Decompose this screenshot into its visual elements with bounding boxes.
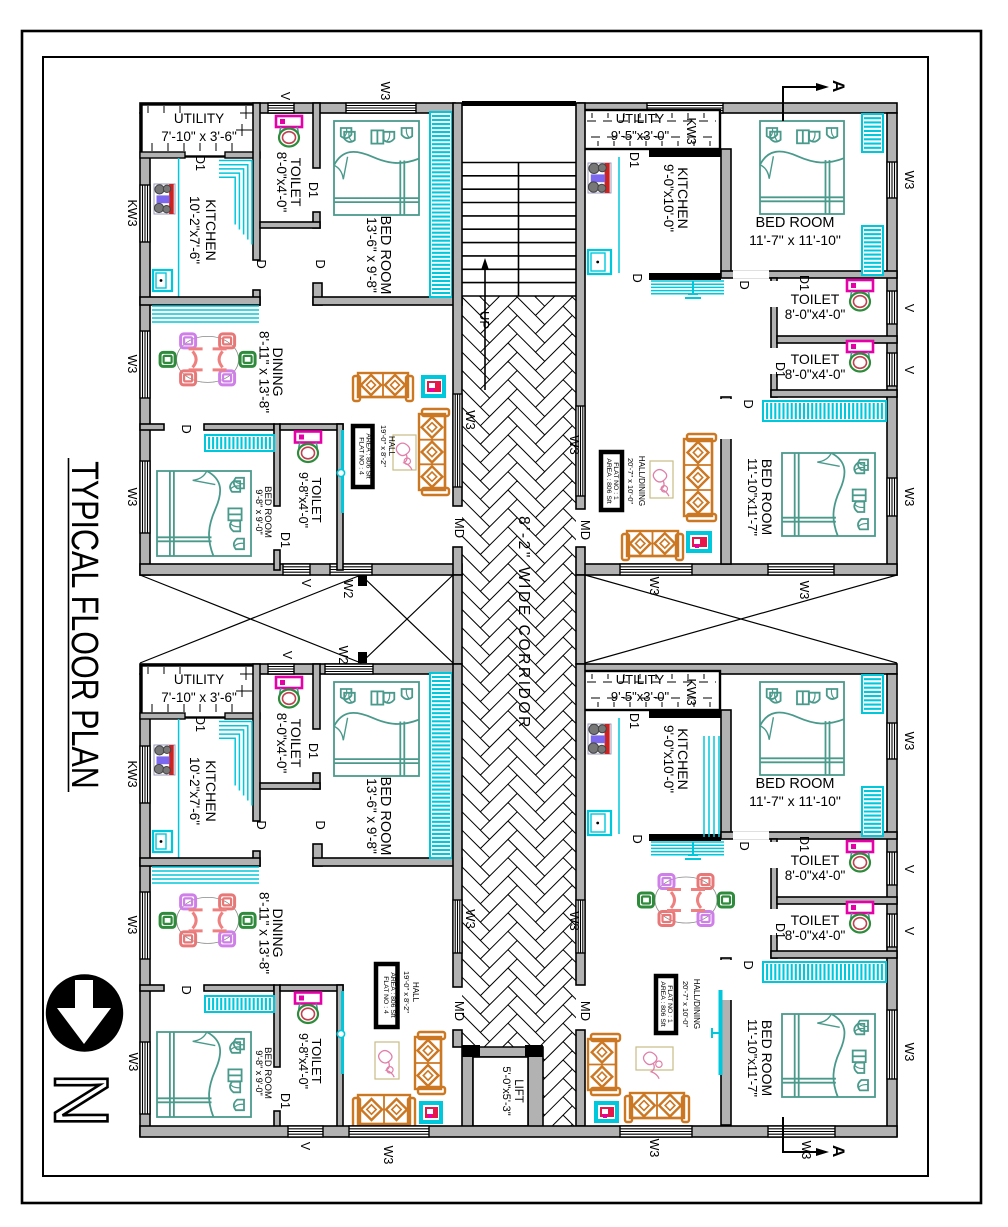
svg-text:8'-11" x 13'-8": 8'-11" x 13'-8"	[257, 331, 272, 413]
svg-text:D1: D1	[797, 275, 811, 291]
svg-text:D: D	[741, 399, 756, 408]
svg-text:V: V	[278, 92, 292, 101]
svg-text:D1: D1	[193, 155, 207, 171]
svg-text:V: V	[280, 651, 294, 660]
svg-text:TOILET: TOILET	[791, 291, 840, 307]
svg-text:TYPICAL FLOOR PLAN: TYPICAL FLOOR PLAN	[63, 461, 105, 789]
svg-text:W3: W3	[125, 488, 139, 507]
svg-text:KW3: KW3	[684, 678, 698, 705]
svg-text:W3: W3	[567, 911, 582, 931]
svg-text:TOILET: TOILET	[791, 912, 840, 928]
svg-text:W3: W3	[799, 1141, 813, 1160]
svg-text:11'-10"x11'-7": 11'-10"x11'-7"	[745, 1019, 760, 1097]
svg-text:BED ROOM: BED ROOM	[759, 1020, 775, 1096]
svg-text:10'-2"x7'-6": 10'-2"x7'-6"	[187, 757, 202, 825]
svg-text:V: V	[902, 366, 916, 375]
svg-text:10'-2"x7'-6": 10'-2"x7'-6"	[187, 196, 202, 264]
svg-text:A: A	[829, 1145, 848, 1157]
svg-text:D1: D1	[773, 362, 787, 378]
svg-text:W3: W3	[463, 410, 478, 430]
svg-text:TOILET: TOILET	[309, 1038, 324, 1083]
svg-text:MD: MD	[578, 1001, 593, 1021]
svg-text:KW3: KW3	[125, 760, 139, 787]
svg-text:FLAT NO : 4: FLAT NO : 4	[382, 976, 389, 1014]
svg-text:W3: W3	[125, 355, 139, 374]
svg-text:9'-0"x10'-0": 9'-0"x10'-0"	[661, 164, 676, 232]
svg-text:D: D	[254, 259, 269, 268]
svg-text:KW3: KW3	[684, 117, 698, 144]
svg-text:9'-5"x3'-0": 9'-5"x3'-0"	[611, 128, 670, 143]
svg-text:9'-8" x 9'-0": 9'-8" x 9'-0"	[254, 489, 264, 534]
svg-text:HALL/DINING: HALL/DINING	[692, 979, 701, 1029]
svg-text:BED ROOM: BED ROOM	[756, 215, 835, 231]
svg-text:D1: D1	[627, 152, 641, 168]
svg-text:UTILITY: UTILITY	[174, 672, 224, 687]
svg-text:11'-7" x 11'-10": 11'-7" x 11'-10"	[749, 232, 841, 248]
svg-text:N: N	[38, 1073, 123, 1128]
svg-text:W3: W3	[902, 488, 916, 507]
svg-text:HALL: HALL	[411, 982, 420, 1003]
svg-text:8'-0"x4'-0": 8'-0"x4'-0"	[785, 307, 846, 322]
svg-text:AREA : 806 Sft: AREA : 806 Sft	[389, 972, 396, 1017]
svg-text:TOILET: TOILET	[791, 852, 840, 868]
svg-text:D1: D1	[278, 1093, 292, 1109]
svg-text:8'-11" x 13'-8": 8'-11" x 13'-8"	[257, 892, 272, 974]
svg-text:W2: W2	[336, 646, 350, 665]
svg-text:D1: D1	[627, 713, 641, 729]
svg-text:D: D	[737, 841, 752, 850]
svg-text:D: D	[179, 985, 194, 994]
svg-text:TOILET: TOILET	[791, 351, 840, 367]
svg-text:FLAT NO : 1: FLAT NO : 1	[612, 462, 619, 500]
svg-text:11'-7" x 11'-10": 11'-7" x 11'-10"	[749, 793, 841, 809]
svg-text:D1: D1	[797, 836, 811, 852]
svg-text:FLAT NO : 4: FLAT NO : 4	[358, 437, 365, 475]
svg-text:9'-8" x 9'-0": 9'-8" x 9'-0"	[254, 1050, 264, 1095]
svg-text:19'-0" x 8'-2": 19'-0" x 8'-2"	[402, 971, 411, 1013]
svg-text:W3: W3	[647, 577, 661, 596]
svg-text:9'-8"x4'-0": 9'-8"x4'-0"	[296, 472, 310, 528]
svg-text:W3: W3	[902, 171, 916, 190]
svg-text:HALL/DINING: HALL/DINING	[637, 456, 646, 506]
svg-text:D1: D1	[278, 532, 292, 548]
svg-text:11'-10"x11'-7": 11'-10"x11'-7"	[745, 458, 760, 536]
svg-text:8'-2" WIDE CORRIDOR: 8'-2" WIDE CORRIDOR	[515, 516, 532, 730]
svg-text:TOILET: TOILET	[288, 158, 304, 207]
svg-text:W3: W3	[126, 1053, 140, 1072]
svg-text:MD: MD	[578, 520, 593, 540]
svg-text:8'-0"x4'-0": 8'-0"x4'-0"	[274, 713, 289, 774]
svg-text:KW3: KW3	[125, 199, 139, 226]
svg-text:19'-0" x 8'-2": 19'-0" x 8'-2"	[379, 425, 388, 467]
svg-text:13'-6" x 9'-8": 13'-6" x 9'-8"	[364, 217, 379, 293]
svg-text:D: D	[313, 259, 328, 268]
svg-text:W3: W3	[902, 732, 916, 751]
svg-text:D: D	[179, 424, 194, 433]
svg-text:D: D	[254, 820, 269, 829]
svg-text:KITCHEN: KITCHEN	[203, 760, 219, 821]
svg-text:20'-7" x 10'-0": 20'-7" x 10'-0"	[681, 981, 690, 1027]
svg-text:V: V	[298, 1142, 312, 1151]
svg-text:D: D	[737, 280, 752, 289]
svg-text:LIFT: LIFT	[512, 1079, 524, 1103]
svg-text:UTILITY: UTILITY	[616, 672, 665, 687]
svg-text:D1: D1	[306, 182, 320, 198]
svg-text:W3: W3	[567, 435, 582, 455]
svg-text:9'-0"x10'-0": 9'-0"x10'-0"	[661, 725, 676, 793]
svg-text:BED ROOM: BED ROOM	[756, 776, 835, 792]
svg-text:D: D	[630, 273, 645, 282]
svg-text:W2: W2	[341, 580, 355, 599]
svg-text:20'-7" x 10'-0": 20'-7" x 10'-0"	[626, 458, 635, 504]
svg-text:D1: D1	[306, 743, 320, 759]
svg-text:D1: D1	[773, 923, 787, 939]
svg-text:9'-8"x4'-0": 9'-8"x4'-0"	[296, 1033, 310, 1089]
svg-text:BED ROOM: BED ROOM	[759, 459, 775, 535]
svg-text:D1: D1	[193, 716, 207, 732]
svg-text:7'-10" x 3'-6": 7'-10" x 3'-6"	[161, 129, 237, 144]
svg-text:V: V	[902, 927, 916, 936]
svg-text:V: V	[299, 579, 313, 588]
svg-text:AREA : 806 Sft: AREA : 806 Sft	[659, 981, 666, 1026]
svg-text:8'-0"x4'-0": 8'-0"x4'-0"	[785, 868, 846, 883]
svg-text:D: D	[313, 820, 328, 829]
svg-text:UTILITY: UTILITY	[174, 111, 224, 126]
svg-text:V: V	[902, 865, 916, 874]
svg-text:FLAT NO : 1: FLAT NO : 1	[666, 985, 673, 1023]
svg-text:W3: W3	[647, 1139, 661, 1158]
svg-text:W3: W3	[902, 1043, 916, 1062]
svg-text:D: D	[630, 834, 645, 843]
svg-text:V: V	[902, 304, 916, 313]
svg-text:W3: W3	[125, 916, 139, 935]
svg-text:7'-10" x 3'-6": 7'-10" x 3'-6"	[161, 690, 237, 705]
svg-text:AREA : 806 Sft: AREA : 806 Sft	[605, 458, 612, 503]
svg-text:AREA : 806 Sft: AREA : 806 Sft	[365, 433, 372, 478]
svg-text:W3: W3	[381, 1146, 395, 1165]
svg-text:8'-0"x4'-0": 8'-0"x4'-0"	[274, 152, 289, 213]
svg-text:TOILET: TOILET	[288, 719, 304, 768]
svg-text:W3: W3	[378, 82, 392, 101]
svg-text:A: A	[829, 80, 848, 92]
svg-text:KITCHEN: KITCHEN	[675, 728, 691, 789]
svg-text:8'-0"x4'-0": 8'-0"x4'-0"	[785, 928, 846, 943]
svg-text:8'-0"x4'-0": 8'-0"x4'-0"	[785, 367, 846, 382]
svg-text:KITCHEN: KITCHEN	[203, 199, 219, 260]
svg-text:W3: W3	[797, 581, 811, 600]
svg-text:KITCHEN: KITCHEN	[675, 167, 691, 228]
svg-text:D: D	[741, 960, 756, 969]
svg-text:9'-5"x3'-0": 9'-5"x3'-0"	[611, 689, 670, 704]
svg-text:TOILET: TOILET	[309, 477, 324, 522]
svg-text:5'-0"x5'-3": 5'-0"x5'-3"	[500, 1066, 512, 1115]
svg-text:13'-6" x 9'-8": 13'-6" x 9'-8"	[364, 778, 379, 854]
svg-text:UTILITY: UTILITY	[616, 111, 665, 126]
svg-text:MD: MD	[452, 1001, 467, 1021]
